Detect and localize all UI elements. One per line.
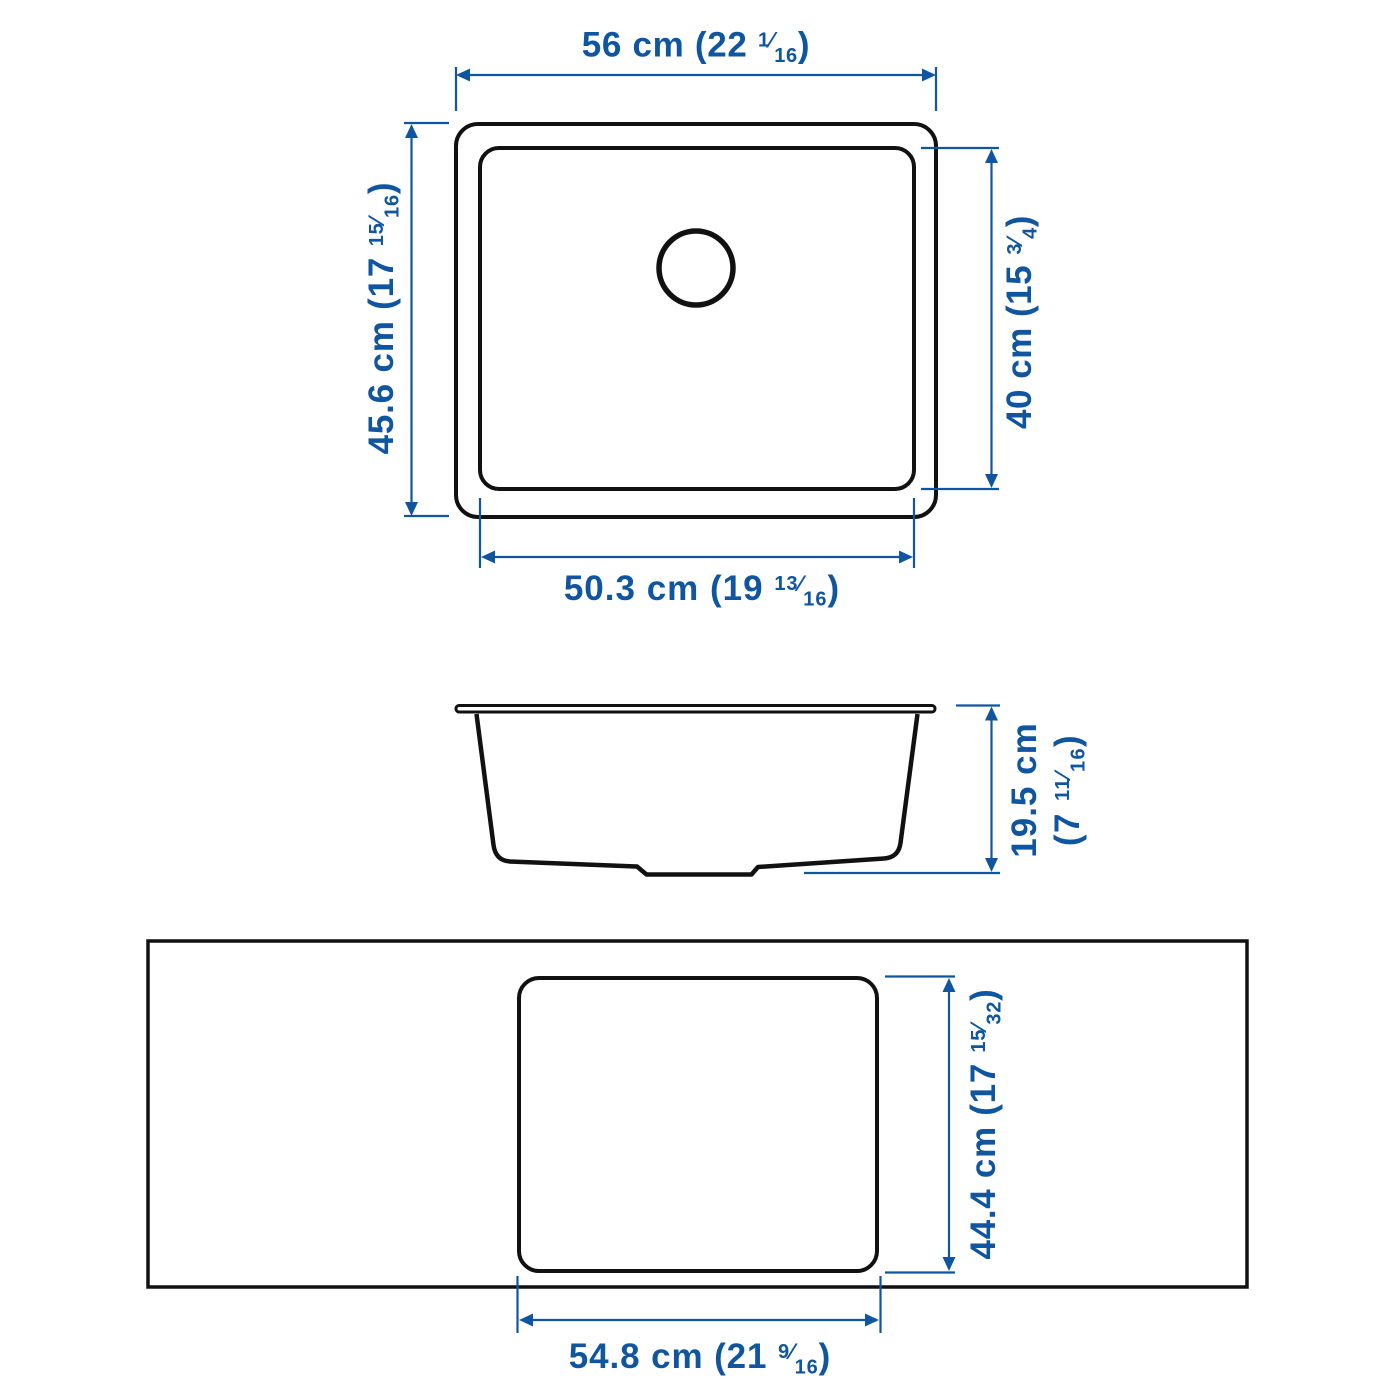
svg-text:45.6 cm (17 15⁄16): 45.6 cm (17 15⁄16) — [362, 182, 404, 455]
svg-text:44.4 cm (17 15⁄32): 44.4 cm (17 15⁄32) — [964, 989, 1006, 1260]
svg-text:19.5 cm: 19.5 cm — [1005, 722, 1044, 857]
svg-text:54.8 cm (21 9⁄16): 54.8 cm (21 9⁄16) — [569, 1337, 831, 1379]
svg-text:50.3 cm (19 13⁄16): 50.3 cm (19 13⁄16) — [564, 569, 840, 611]
svg-text:(7 11⁄16): (7 11⁄16) — [1048, 734, 1090, 846]
svg-text:56 cm (22 1⁄16): 56 cm (22 1⁄16) — [582, 26, 811, 68]
svg-text:40 cm (15 3⁄4): 40 cm (15 3⁄4) — [1000, 215, 1042, 429]
